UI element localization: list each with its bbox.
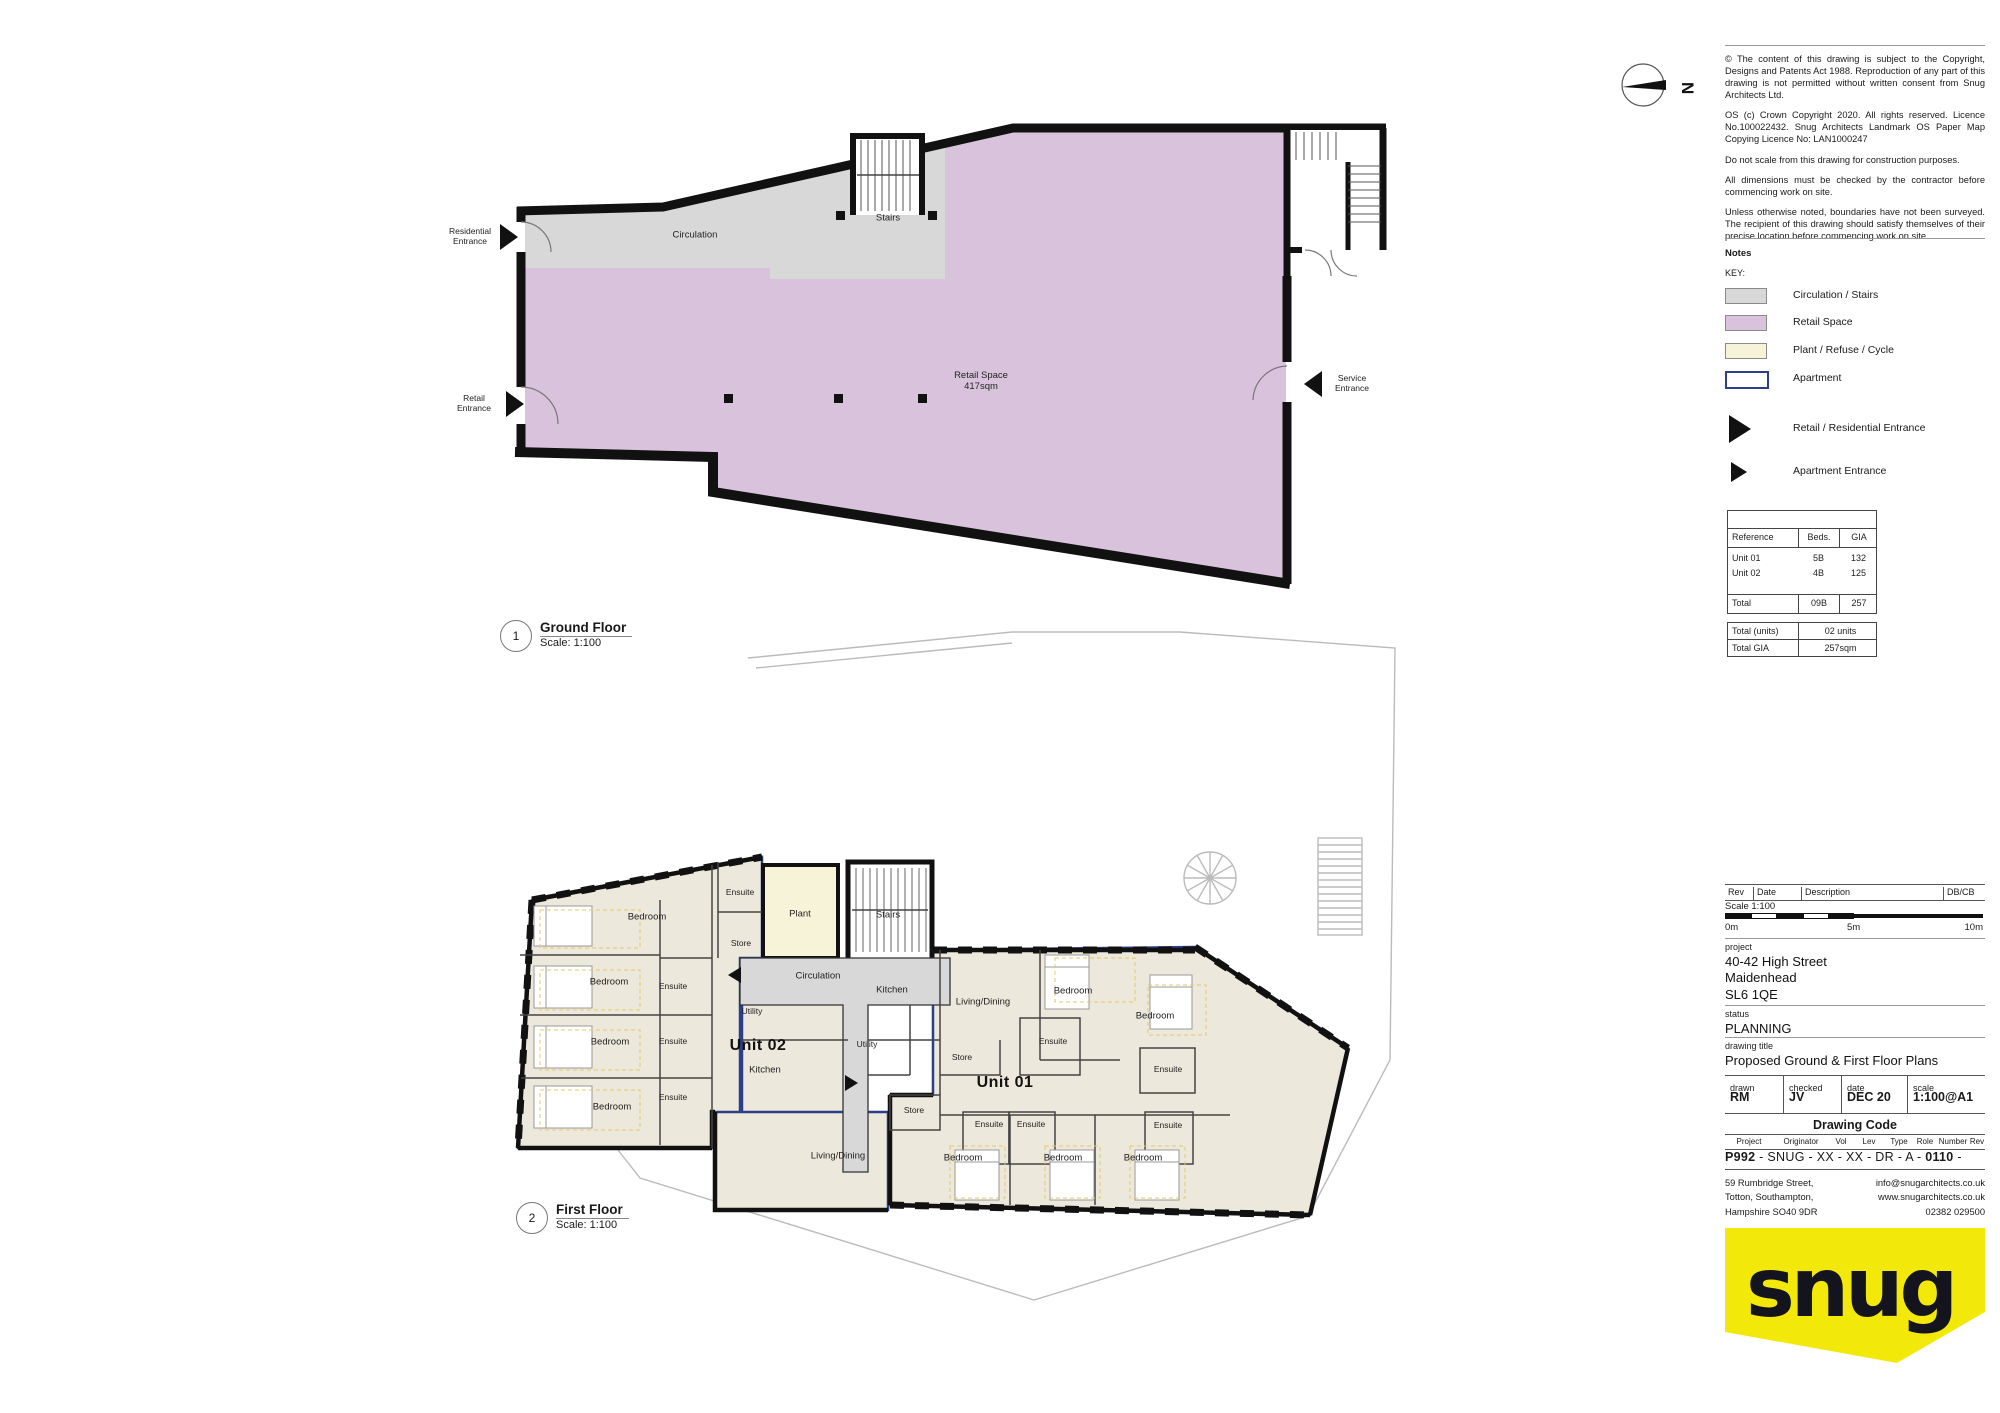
column-header: Description [1805,887,1850,897]
logo-text: snug [1746,1241,1954,1336]
summary-row-units: Total (units) 02 units [1727,622,1877,640]
ground-floor-name: Ground Floor [540,620,632,637]
ground-floor-marker: 1 [500,620,532,652]
cell-label: Total (units) [1728,623,1798,639]
copyright-paragraph: © The content of this drawing is subject… [1725,53,1985,101]
area-table-total-row: Total 09B 257 [1727,594,1877,614]
column-header: Role [1917,1137,1933,1146]
divider [1725,938,1985,939]
cell-total-beds: 09B [1798,595,1839,613]
cell-gia: 125 [1839,565,1878,580]
cell-label: Total GIA [1728,640,1798,656]
small-entrance-arrow-icon [1731,462,1747,482]
meta-table: drawn RM checked JV date DEC 20 scale 1:… [1725,1075,1985,1114]
divider [1725,1037,1985,1038]
first-floor-marker: 2 [516,1202,548,1234]
column-header: Originator [1783,1137,1818,1146]
drawing-code-header-row: Project Originator Vol Lev Type Role Num… [1725,1134,1985,1150]
apartment-swatch-icon [1725,371,1769,389]
code-number: 0110 [1925,1150,1953,1164]
column-header: Rev [1970,1137,1984,1146]
circulation-swatch-icon [1725,288,1767,304]
key-item-label: Retail / Residential Entrance [1793,422,1926,434]
plant-room-area [763,865,838,958]
first-floor-plan [518,632,1395,1300]
revision-header-row: Rev Date Description DB/CB [1725,884,1985,901]
architect-contact-block: 59 Rumbridge Street, Totton, Southampton… [1725,1176,1985,1219]
column-header: Reference [1728,529,1798,547]
key-item-plant: Plant / Refuse / Cycle [1725,343,1985,359]
ff-stairs [848,862,932,958]
cell-value: 02 units [1798,623,1878,639]
ground-floor-scale: Scale: 1:100 [540,637,601,649]
cell-gia: 132 [1839,550,1878,565]
notes-heading: Notes [1725,248,1751,259]
gf-stairwell-topright [1287,128,1383,276]
key-item-label: Plant / Refuse / Cycle [1793,344,1894,356]
table-row: Unit 01 5B 132 [1728,550,1878,565]
divider [1725,45,1985,46]
meta-value: RM [1730,1090,1749,1104]
plan-canvas: N snug [0,0,2000,1413]
cell-beds: 4B [1798,565,1839,580]
meta-value: 1:100@A1 [1913,1090,1973,1104]
key-item-circulation: Circulation / Stairs [1725,288,1985,304]
meta-value: DEC 20 [1847,1090,1891,1104]
cell-total-gia: 257 [1839,595,1878,613]
area-schedule-table: Reference Beds. GIA Unit 01 5B 132 Unit … [1727,510,1879,670]
snug-logo: snug [1725,1228,1985,1363]
summary-row-gia: Total GIA 257sqm [1727,639,1877,657]
key-item-label: Circulation / Stairs [1793,289,1878,301]
drawing-title-value: Proposed Ground & First Floor Plans [1725,1053,1938,1068]
column-header: Project [1737,1137,1762,1146]
column-header: Beds. [1798,529,1839,547]
copyright-block: © The content of this drawing is subject… [1725,53,1985,250]
column-header: Lev [1863,1137,1876,1146]
drawing-code-value: P992 - SNUG - XX - XX - DR - A - 0110 - [1725,1150,1985,1170]
scale-bar: 0m 5m 10m [1725,913,1983,935]
divider [1725,1005,1985,1006]
project-line: Maidenhead [1725,970,1827,986]
scalebar-label: Scale 1:100 [1725,901,1775,912]
scale-tick: 5m [1847,922,1860,933]
service-entrance-arrow-icon [1304,371,1322,397]
key-item-label: Retail Space [1793,316,1853,328]
key-item-apartment: Apartment [1725,371,1985,387]
scale-tick: 0m [1725,922,1738,933]
retail-swatch-icon [1725,315,1767,331]
contact-phone: 02382 029500 [1876,1205,1985,1219]
key-item-label: Apartment Entrance [1793,465,1886,477]
contact-lines: info@snugarchitects.co.uk www.snugarchit… [1876,1176,1985,1219]
column-header: Vol [1835,1137,1846,1146]
plant-swatch-icon [1725,343,1767,359]
drawing-sheet: { "north_label": "N", "colors": { "circu… [0,0,2000,1413]
cell-beds: 5B [1798,550,1839,565]
code-mid: - SNUG - XX - XX - DR - A - [1755,1150,1925,1164]
key-item-apartment-entrance: Apartment Entrance [1725,460,1985,484]
retail-entrance-arrow-icon [506,391,524,417]
copyright-paragraph: All dimensions must be checked by the co… [1725,174,1985,198]
copyright-paragraph: Unless otherwise noted, boundaries have … [1725,206,1985,242]
column-header: Number [1939,1137,1967,1146]
status-value: PLANNING [1725,1021,1791,1036]
meta-value: JV [1789,1090,1804,1104]
area-table-title-cell [1727,510,1877,529]
contact-website: www.snugarchitects.co.uk [1876,1190,1985,1204]
column-header: DB/CB [1947,887,1975,897]
project-line: SL6 1QE [1725,987,1827,1003]
project-line: 40-42 High Street [1725,954,1827,970]
first-floor-name: First Floor [556,1202,629,1219]
residential-entrance-arrow-icon [500,224,518,250]
large-entrance-arrow-icon [1729,415,1751,443]
column-header: Rev [1728,887,1744,897]
project-address: 40-42 High Street Maidenhead SL6 1QE [1725,954,1827,1003]
column-header: Type [1890,1137,1907,1146]
area-table-header-row: Reference Beds. GIA [1727,528,1877,548]
key-heading: KEY: [1725,268,1745,278]
project-label: project [1725,942,1752,952]
drawing-title-label: drawing title [1725,1041,1773,1051]
copyright-paragraph: OS (c) Crown Copyright 2020. All rights … [1725,109,1985,145]
area-table-body: Unit 01 5B 132 Unit 02 4B 125 [1727,547,1877,595]
cell-reference: Unit 01 [1728,550,1798,565]
cell-total-label: Total [1728,595,1798,613]
north-label: N [1678,82,1697,94]
column-header: GIA [1839,529,1878,547]
meta-drawn: drawn RM [1725,1076,1783,1113]
drawing-code-heading: Drawing Code [1725,1118,1985,1132]
key-item-label: Apartment [1793,372,1841,384]
meta-scale: scale 1:100@A1 [1907,1076,1985,1113]
code-project: P992 [1725,1150,1755,1164]
cell-value: 257sqm [1798,640,1878,656]
first-floor-scale: Scale: 1:100 [556,1219,617,1231]
column-header: Date [1757,887,1776,897]
meta-date: date DEC 20 [1841,1076,1907,1113]
code-suffix: - [1954,1150,1962,1164]
key-item-retail: Retail Space [1725,315,1985,331]
cell-reference: Unit 02 [1728,565,1798,580]
contact-email: info@snugarchitects.co.uk [1876,1176,1985,1190]
table-row: Unit 02 4B 125 [1728,565,1878,580]
north-arrow: N [1622,64,1697,106]
key-item-retail-res-entrance: Retail / Residential Entrance [1725,415,1985,445]
scale-tick: 10m [1965,922,1983,933]
gf-stairs [853,136,922,215]
status-label: status [1725,1009,1749,1019]
divider [1725,238,1985,239]
ground-floor-plan [500,128,1386,584]
copyright-paragraph: Do not scale from this drawing for const… [1725,154,1985,166]
meta-checked: checked JV [1783,1076,1841,1113]
